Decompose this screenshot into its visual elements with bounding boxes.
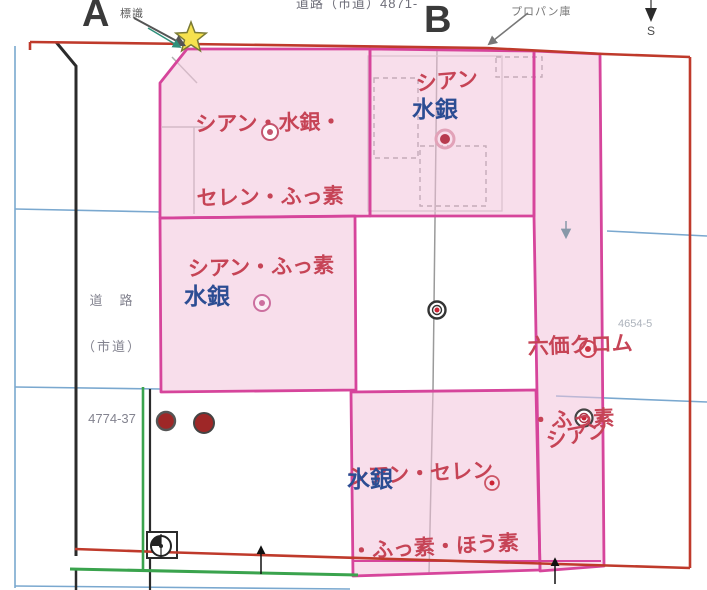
zone-top-left-label: シアン・水銀・ セレン・ふっ素 — [194, 61, 344, 262]
point-a-note: 標識 — [120, 8, 144, 21]
benchmark-marker — [151, 534, 171, 558]
well-marker-center — [429, 302, 446, 319]
zone-top-left-line1: シアン・水銀・ — [195, 110, 342, 137]
zone-top-left-line2: セレン・ふっ素 — [196, 185, 343, 212]
zone-middle-red: シアン・ふっ素 — [188, 254, 335, 283]
left-road-block: 道 路 （市道） 4774-37 — [80, 262, 144, 457]
left-road-parcel-number: 4774-37 — [80, 411, 144, 426]
compass-south-label: S — [647, 24, 655, 38]
zone-bottom-line2: ・ふっ素・ほう素 — [350, 531, 519, 565]
propane-label: プロパン庫 — [511, 6, 572, 19]
compass-south-icon — [645, 0, 657, 22]
filled-point-1 — [157, 412, 175, 430]
zone-right-column-label: 六価クロム ・ふっ素 — [526, 282, 638, 484]
top-road-label: 道路（市道）4871- — [296, 0, 418, 11]
zone-right-line1: 六価クロム — [527, 332, 633, 360]
left-road-type: （市道） — [80, 339, 144, 354]
point-a-label: A — [82, 0, 109, 37]
zone-bottom-middle-label: シアン・セレン ・ふっ素・ほう素 — [344, 408, 522, 590]
left-road-name: 道 路 — [80, 293, 144, 308]
filled-point-2 — [194, 413, 214, 433]
zone-top-middle-blue: 水銀 — [412, 96, 458, 123]
faint-parcel-number: 4654-5 — [618, 318, 652, 331]
point-b-label: B — [424, 0, 451, 43]
arrow-a-to-star — [134, 18, 184, 45]
contamination-site-map: A 標識 道路（市道）4871- B プロパン庫 S 道 路 （市道） 4774… — [0, 0, 707, 590]
star-icon — [176, 22, 206, 51]
zone-bottom-middle-blue: 水銀 — [347, 466, 393, 493]
zone-middle-blue: 水銀 — [184, 283, 230, 310]
well-marker-middle — [254, 295, 270, 311]
